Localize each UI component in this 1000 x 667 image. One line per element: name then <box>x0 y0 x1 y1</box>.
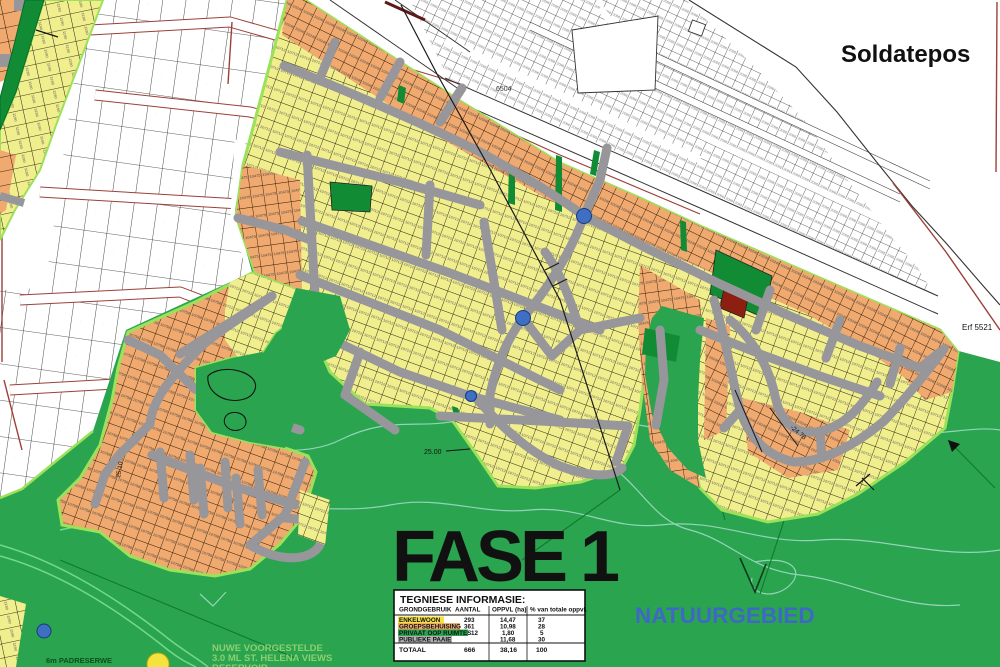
svg-text:6504: 6504 <box>496 86 512 93</box>
svg-text:RESERVOIR: RESERVOIR <box>212 663 268 667</box>
svg-text:PUBLIEKE PAAIE: PUBLIEKE PAAIE <box>399 637 451 644</box>
svg-text:38,16: 38,16 <box>500 647 517 654</box>
svg-text:% van totale oppvl.: % van totale oppvl. <box>530 607 587 614</box>
svg-text:GRONDGEBRUIK: GRONDGEBRUIK <box>399 607 452 614</box>
svg-text:Erf 5521: Erf 5521 <box>962 323 993 332</box>
svg-text:Soldatepos: Soldatepos <box>841 41 970 68</box>
svg-text:100: 100 <box>536 647 548 654</box>
svg-text:30: 30 <box>538 637 546 644</box>
svg-text:NATUURGEBIED: NATUURGEBIED <box>635 603 815 628</box>
svg-text:6m PADRESERWE: 6m PADRESERWE <box>46 656 112 665</box>
svg-text:11,68: 11,68 <box>500 637 516 644</box>
svg-text:TEGNIESE INFORMASIE:: TEGNIESE INFORMASIE: <box>400 594 525 606</box>
svg-text:666: 666 <box>464 647 476 654</box>
svg-text:OPPVL (ha): OPPVL (ha) <box>492 607 527 614</box>
svg-text:AANTAL: AANTAL <box>455 607 481 614</box>
svg-text:12: 12 <box>471 630 479 637</box>
svg-text:TOTAAL: TOTAAL <box>399 647 426 654</box>
svg-text:FASE 1: FASE 1 <box>392 517 619 597</box>
svg-text:25.00: 25.00 <box>424 449 442 456</box>
